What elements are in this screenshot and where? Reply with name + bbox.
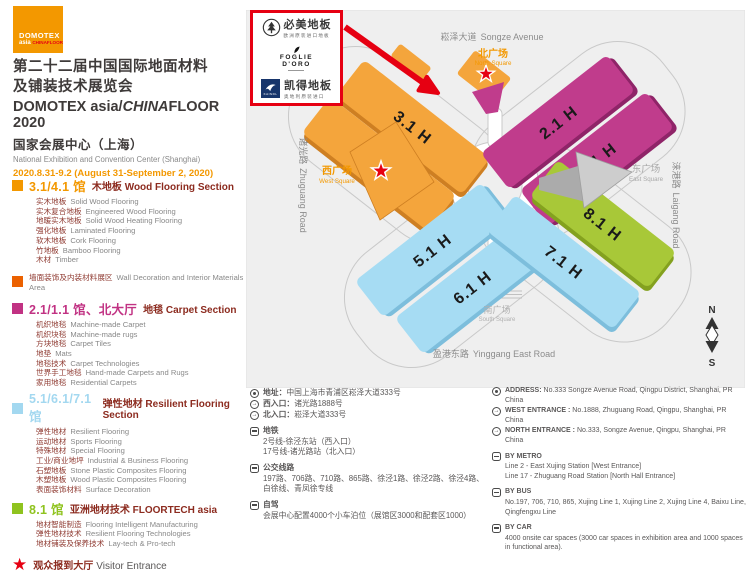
legend-item: 石塑地板Stone Plastic Composites Flooring [36,466,245,476]
legend-item: 地垫Mats [36,349,245,359]
carpet-category: 地毯 Carpet Section [143,301,236,316]
metro-line: 17号线-诸光路站（北入口） [263,447,488,457]
legend-item: 工业/商业地坪Industrial & Business Flooring [36,456,245,466]
brand-kaide-subtitle: 奥地利原装进口 [284,94,332,100]
west-entrance-row-cn: → 西入口：诸光路1888号 [250,399,488,409]
north-entrance-icon: → [492,427,501,436]
location-pin-icon [492,387,501,396]
legend-item: 家用地毯Residential Carpets [36,378,245,388]
legend: 3.1/4.1 馆 木地板 Wood Flooring Section 实木地板… [12,176,245,574]
west-entrance-icon: → [250,400,259,409]
road-zhuguang: 诸光路Zhuguang Road [298,137,309,233]
legend-item: 弹性地材Resilient Flooring [36,427,245,437]
svg-text:西广场: 西广场 [322,164,352,177]
west-entrance-row-en: → WEST ENTRANCE : No.1888, Zhuguang Road… [492,406,746,425]
resilient-color-swatch [12,403,23,414]
bus-lines-en: No.197, 706, 710, 865, Xujing Line 1, Xu… [492,498,746,517]
metro-line: 2号线-徐泾东站（西入口） [263,437,488,447]
resilient-category: 弹性地材 Resilient Flooring Section [103,395,245,421]
svg-text:东广场: 东广场 [632,163,661,175]
bus-block-cn: 公交线路 197路、706路、710路、865路、徐泾1路、徐泾2路、徐泾4路、… [250,463,488,494]
brand-foglie-line2: D'ORO [282,61,311,68]
event-title-zh-line2: 及铺装技术展览会 [13,77,243,97]
road-laigang: 涞港路Laigang Road [671,161,682,248]
road-yinggang-east: 盈港东路Yinggang East Road [433,348,555,359]
metro-block-en: BY METRO Line 2 - East Xujing Station [W… [492,452,746,482]
brand-foglie-line1: FOGLIE [280,54,313,61]
svg-text:S: S [709,358,716,369]
domotex-logo: DOMOTEX asia CHINAFLOOR [13,6,63,53]
north-square-label: 北广场 North Square [475,47,512,67]
kaindl-wordmark: KAINDL [264,92,278,96]
car-line-en: 4000 onsite car spaces (3000 car spaces … [492,534,746,553]
foglie-script-line [288,70,304,71]
legend-item: 强化地板Laminated Flooring [36,226,245,236]
metro-block-cn: 地铁 2号线-徐泾东站（西入口）17号线-诸光路站（北入口） [250,426,488,457]
entrance-star-icon: ★ [12,557,27,573]
floortech-hall-number: 8.1 馆 [29,499,64,518]
brand-kaide-name: 凯得地板 [284,77,332,93]
brand-bimei-name: 必美地板 [284,16,332,32]
event-title-en: DOMOTEX asia/CHINAFLOOR 2020 [13,99,243,131]
metro-icon [250,427,259,436]
dove-icon [264,81,278,92]
east-square-label: 东广场 East Square [629,163,664,183]
bus-icon [250,464,259,473]
brand-bimei: 必美地板 欧洲原装进口地板 [262,16,332,39]
legend-item: 弹性地材技术Resilient Flooring Technologies [36,529,245,539]
legend-item: 软木地板Cork Flooring [36,236,245,246]
logo-text-chinafloor: CHINAFLOOR [32,40,63,45]
metro-line: Line 2 - East Xujing Station [West Entra… [505,462,746,472]
leaf-icon [292,46,301,54]
south-square-label: 南广场 South Square [479,304,516,323]
legend-item: 特殊地材Special Flooring [36,446,245,456]
bus-block-en: BY BUS No.197, 706, 710, 865, Xujing Lin… [492,487,746,517]
north-entrance-row-en: → NORTH ENTRANCE : No.333, Songze Avenue… [492,426,746,445]
legend-item: 机织地毯Machine-made Carpet [36,320,245,330]
legend-item: 地材铺装及保养技术Lay-tech & Pro-tech [36,539,245,549]
location-pin-icon [250,389,259,398]
legend-item: 方块地毯Carpet Tiles [36,339,245,349]
legend-section-wood: 3.1/4.1 馆 木地板 Wood Flooring Section 实木地板… [12,176,245,265]
legend-section-resilient: 5.1/6.1/7.1 馆 弹性地材 Resilient Flooring Se… [12,392,245,495]
address-row-cn: 地址：中国上海市青浦区崧泽大道333号 [250,388,488,398]
wood-hall-number: 3.1/4.1 馆 [29,176,86,195]
bus-lines-cn: 197路、706路、710路、865路、徐泾1路、徐泾2路、徐泾4路、白徐线、青… [250,474,488,494]
legend-item: 机织块毯Machine-made rugs [36,330,245,340]
event-titles: 第二十二届中国国际地面材料 及铺装技术展览会 DOMOTEX asia/CHIN… [13,57,243,179]
info-chinese: 地址：中国上海市青浦区崧泽大道333号 → 西入口：诸光路1888号 → 北入口… [250,388,488,521]
brand-foglie-doro: FOGLIE D'ORO [280,46,313,71]
legend-item: 运动地材Sports Flooring [36,437,245,447]
svg-text:East Square: East Square [629,176,664,183]
legend-item: 地毯技术Carpet Technologies [36,359,245,369]
floortech-color-swatch [12,503,23,514]
legend-item: 地暖实木地板Solid Wood Heating Flooring [36,216,245,226]
exhibitor-logo-box: 必美地板 欧洲原装进口地板 FOGLIE D'ORO KAINDL 凯得地板 奥… [250,10,343,106]
info-english: ADDRESS: No.333 Songze Avenue Road, Qing… [492,386,746,553]
legend-item: 木塑地板Wood Plastic Composites Flooring [36,475,245,485]
venue-name-zh: 国家会展中心（上海） [13,134,243,153]
svg-text:N: N [708,305,715,316]
legend-item: 实木复合地板Engineered Wood Flooring [36,207,245,217]
floortech-category: 亚洲地材技术 FLOORTECH asia [70,501,217,516]
car-block-en: BY CAR 4000 onsite car spaces (3000 car … [492,523,746,553]
logo-text-asia: asia [19,40,31,46]
resilient-hall-number: 5.1/6.1/7.1 馆 [29,392,97,425]
legend-section-carpet: 2.1/1.1 馆、北大厅 地毯 Carpet Section 机织地毯Mach… [12,299,245,388]
bus-icon [492,488,501,497]
north-entrance-icon: → [250,411,259,420]
kaindl-logo: KAINDL [261,79,280,98]
legend-item: 木材Timber [36,255,245,265]
drive-line-cn: 会展中心配置4000个小车泊位（展馆区3000和配套区1000） [250,511,488,521]
legend-item: 世界手工地毯Hand-made Carpets and Rugs [36,368,245,378]
carpet-color-swatch [12,303,23,314]
legend-wall-decoration: 墙面装饰及内装材料展区Wall Decoration and Interior … [12,272,245,292]
wood-category: 木地板 Wood Flooring Section [92,178,234,193]
brand-bimei-subtitle: 欧洲原装进口地板 [284,33,332,39]
metro-icon [492,452,501,461]
car-icon [250,501,259,510]
event-title-zh-line1: 第二十二届中国国际地面材料 [13,57,243,77]
wood-color-swatch [12,180,23,191]
north-entrance-row-cn: → 北入口：崧泽大道333号 [250,410,488,420]
legend-item: 实木地板Solid Wood Flooring [36,197,245,207]
legend-item: 表面装饰材料Surface Decoration [36,485,245,495]
svg-text:North Square: North Square [475,60,512,67]
visitor-entrance-row: ★ 观众报到大厅Visitor Entrance [12,556,245,574]
legend-item: 竹地板Bamboo Flooring [36,246,245,256]
venue-name-en: National Exhibition and Convention Cente… [13,155,243,164]
metro-line: Line 17 - Zhuguang Road Station [North H… [505,472,746,482]
svg-text:West Square: West Square [319,178,355,185]
svg-text:南广场: 南广场 [483,304,510,315]
drive-block-cn: 自驾 会展中心配置4000个小车泊位（展馆区3000和配套区1000） [250,500,488,521]
svg-text:北广场: 北广场 [478,47,508,60]
logo-text-domotex: DOMOTEX [19,31,63,40]
road-songze-avenue: 崧泽大道Songze Avenue [441,31,544,42]
carpet-hall-number: 2.1/1.1 馆、北大厅 [29,299,137,318]
wall-color-swatch [12,276,23,287]
car-icon [492,524,501,533]
legend-section-floortech: 8.1 馆 亚洲地材技术 FLOORTECH asia 地材智能制造Floori… [12,499,245,549]
address-row-en: ADDRESS: No.333 Songze Avenue Road, Qing… [492,386,746,405]
brand-kaindl: KAINDL 凯得地板 奥地利原装进口 [261,77,332,100]
west-square-label: 西广场 West Square [319,164,355,185]
tree-logo-icon [262,18,281,37]
legend-item: 地材智能制造Flooring Intelligent Manufacturing [36,520,245,530]
west-entrance-icon: → [492,407,501,416]
svg-text:South Square: South Square [479,317,516,323]
